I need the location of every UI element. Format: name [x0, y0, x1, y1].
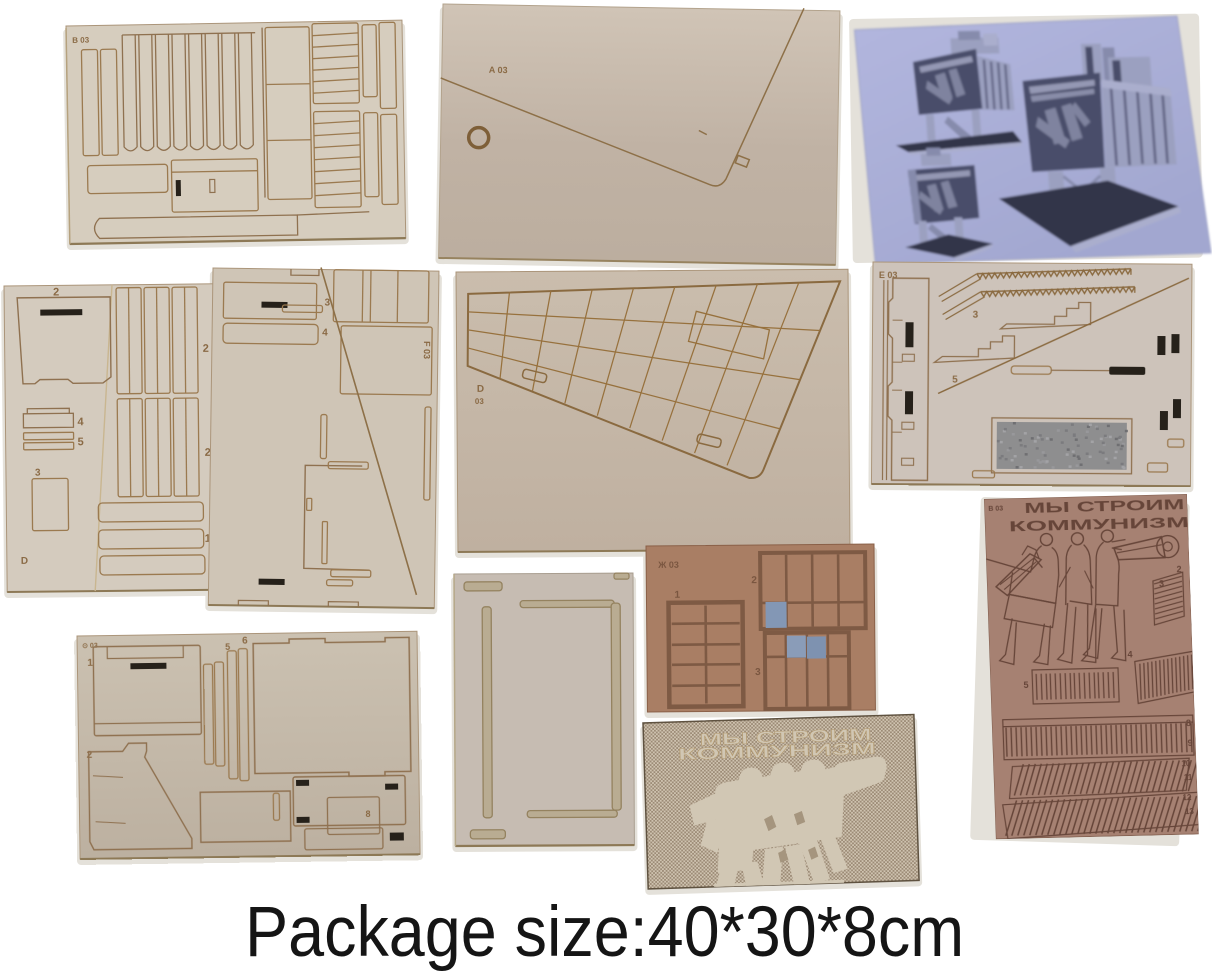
svg-text:3: 3: [755, 667, 761, 678]
svg-text:B 03: B 03: [988, 506, 1003, 513]
svg-text:2: 2: [751, 575, 757, 586]
svg-text:13: 13: [1185, 807, 1195, 816]
svg-text:8: 8: [365, 809, 370, 819]
svg-text:D: D: [477, 384, 484, 395]
svg-text:9: 9: [1187, 738, 1192, 748]
svg-text:1: 1: [87, 658, 93, 669]
svg-text:D: D: [21, 556, 28, 567]
svg-text:Ж 03: Ж 03: [657, 560, 679, 570]
svg-text:11: 11: [1184, 773, 1193, 782]
svg-text:3: 3: [973, 310, 979, 321]
svg-text:12: 12: [1182, 793, 1192, 802]
svg-text:2: 2: [203, 343, 209, 355]
svg-text:2: 2: [53, 286, 59, 298]
svg-text:10: 10: [1181, 759, 1191, 768]
svg-text:F 03: F 03: [422, 341, 432, 359]
svg-text:4: 4: [322, 328, 328, 339]
svg-text:6: 6: [242, 636, 248, 647]
svg-text:5: 5: [78, 436, 84, 448]
svg-text:2: 2: [1176, 564, 1181, 574]
svg-text:8: 8: [1186, 718, 1191, 728]
svg-text:5: 5: [952, 375, 958, 386]
svg-text:1: 1: [674, 590, 680, 601]
svg-text:03: 03: [475, 397, 485, 406]
svg-text:A 03: A 03: [489, 65, 508, 75]
svg-text:5: 5: [1023, 680, 1028, 690]
svg-text:B 03: B 03: [72, 36, 90, 45]
svg-text:4: 4: [77, 416, 84, 428]
svg-text:3: 3: [1159, 579, 1164, 589]
svg-text:4: 4: [1127, 650, 1132, 660]
svg-text:3: 3: [35, 468, 41, 479]
